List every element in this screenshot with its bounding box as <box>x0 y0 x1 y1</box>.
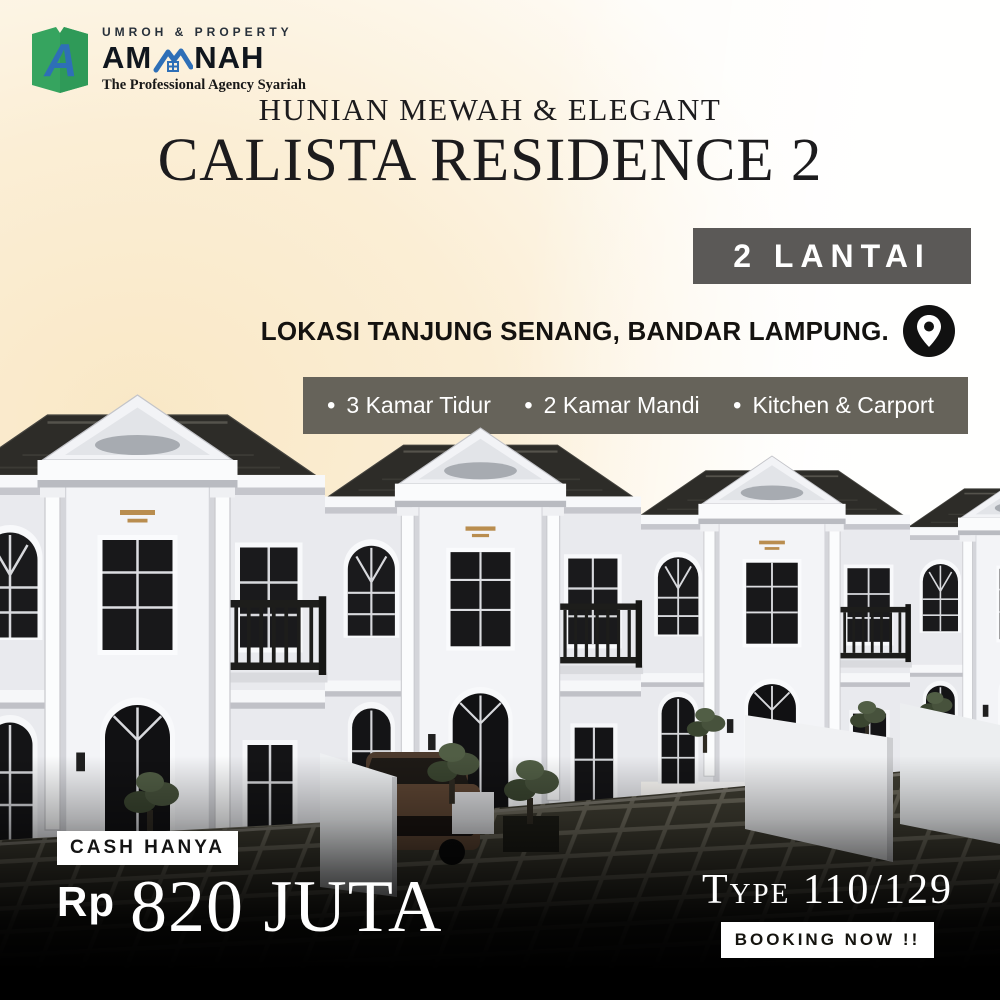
type-label: Type 110/129 <box>702 869 953 911</box>
floors-badge: 2 LANTAI <box>693 228 971 284</box>
booking-now-button[interactable]: BOOKING NOW !! <box>721 922 935 958</box>
book-monogram-icon: A <box>28 24 92 94</box>
poster-subtitle: HUNIAN MEWAH & ELEGANT <box>60 92 920 128</box>
house-roof-icon <box>153 43 193 73</box>
brand-name-suffix: NAH <box>194 42 264 73</box>
map-pin-icon <box>902 304 956 358</box>
location-text: LOKASI TANJUNG SENANG, BANDAR LAMPUNG. <box>261 316 889 347</box>
poster-title: CALISTA RESIDENCE 2 <box>60 129 920 193</box>
brand-tagline-top: UMROH & PROPERTY <box>102 25 306 39</box>
brand-logo: A UMROH & PROPERTY AM NAH The Profession… <box>28 24 306 94</box>
location-row: LOKASI TANJUNG SENANG, BANDAR LAMPUNG. <box>261 304 956 358</box>
brand-tagline-bottom: The Professional Agency Syariah <box>102 77 306 94</box>
header: HUNIAN MEWAH & ELEGANT CALISTA RESIDENCE… <box>60 92 920 193</box>
price-amount: 820 JUTA <box>130 872 442 942</box>
brand-name: AM NAH <box>102 42 306 73</box>
cash-badge: CASH HANYA <box>57 831 238 865</box>
property-ad-poster: A UMROH & PROPERTY AM NAH The Profession… <box>0 0 1000 1000</box>
price-block: CASH HANYA Rp 820 JUTA <box>57 831 442 942</box>
brand-name-prefix: AM <box>102 42 152 73</box>
type-block: Type 110/129 BOOKING NOW !! <box>702 869 953 958</box>
currency-label: Rp <box>57 878 115 926</box>
svg-text:A: A <box>43 34 77 86</box>
